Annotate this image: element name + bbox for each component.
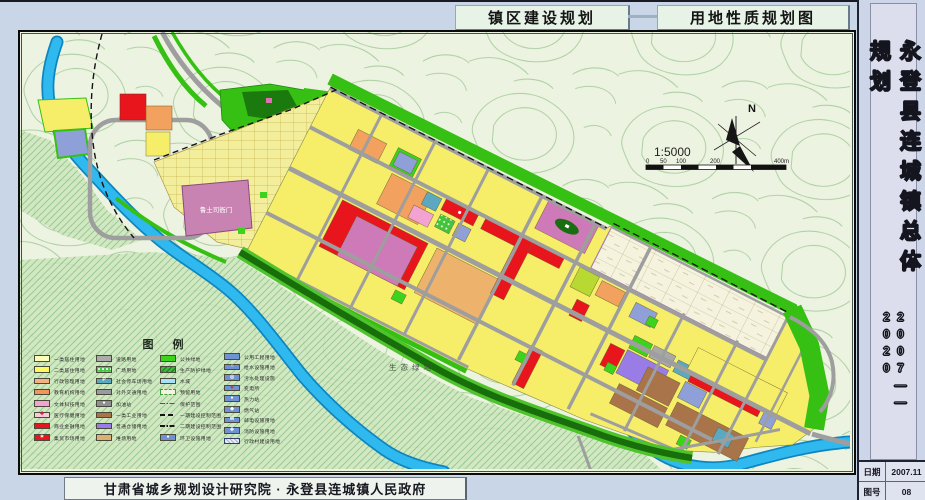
legend-symbol: ✶	[34, 434, 50, 441]
legend-label: 医疗保健用地	[54, 412, 85, 419]
sidebar-panel: 永登县连城镇总体规划 2007——2020	[870, 3, 917, 460]
legend-label: 燃气站	[244, 407, 260, 414]
date-label: 日期	[859, 462, 886, 481]
legend-swatch	[160, 366, 176, 373]
titleblock-row: 日期 2007.11	[859, 462, 925, 482]
legend-label: 保护范围	[180, 401, 201, 408]
legend-label: 对外交通用地	[116, 389, 147, 396]
legend-symbol: ◆	[224, 406, 240, 413]
titleblock-row: 图号 08	[859, 482, 925, 500]
map-frame: 鲁土司衙门	[18, 30, 856, 475]
plan-years-vertical: 2007——2020	[880, 310, 908, 459]
legend-swatch	[96, 423, 112, 430]
sheet-top-border	[0, 0, 925, 2]
legend: 图 例 一类居住用地二类居住用地行政管理用地教育机构用地文体科技用地✚医疗保健用…	[34, 336, 296, 468]
legend-label: 行政村建设用地	[244, 438, 280, 445]
plan-title-vertical: 永登县连城镇总体规划	[864, 40, 924, 302]
legend-label: 邮电设施用地	[244, 417, 275, 424]
legend-swatch	[34, 366, 50, 373]
legend-swatch	[160, 378, 176, 385]
legend-swatch	[160, 403, 176, 405]
legend-label: 二类居住用地	[54, 367, 85, 374]
legend-label: 社会停车场用地	[116, 378, 152, 385]
legend-label: 给水设施用地	[244, 364, 275, 371]
legend-label: 行政管理用地	[54, 378, 85, 385]
legend-label: 道路用地	[116, 356, 137, 363]
legend-swatch	[160, 414, 176, 416]
legend-swatch	[34, 400, 50, 407]
legend-swatch	[34, 378, 50, 385]
legend-label: 热力站	[244, 396, 260, 403]
legend-symbol: ●	[96, 400, 112, 407]
legend-swatch	[96, 434, 112, 441]
legend-symbol: ✚	[34, 412, 50, 419]
legend-label: 环卫设施用地	[180, 435, 211, 442]
legend-swatch	[160, 355, 176, 362]
legend-swatch	[34, 423, 50, 430]
legend-swatch	[96, 366, 112, 373]
legend-label: 一期建设控制范围	[180, 412, 222, 419]
legend-swatch	[224, 353, 240, 360]
legend-swatch	[34, 355, 50, 362]
legend-symbol: ✚	[224, 427, 240, 434]
legend-title: 图 例	[102, 336, 232, 352]
legend-symbol: ●	[224, 395, 240, 402]
title-connector	[628, 15, 658, 18]
legend-symbol: ●	[160, 434, 176, 441]
legend-swatch	[160, 389, 176, 396]
legend-label: 文体科技用地	[54, 401, 85, 408]
title-right: 用地性质规划图	[657, 5, 850, 31]
legend-swatch	[96, 412, 112, 419]
legend-symbol: P	[96, 378, 112, 385]
legend-label: 生产防护绿地	[180, 367, 211, 374]
legend-label: 加油站	[116, 401, 132, 408]
legend-label: 商业金融用地	[54, 423, 85, 430]
legend-label: 公用工程用地	[244, 354, 275, 361]
legend-label: 污水处理设施	[244, 375, 275, 382]
sheet-number-value: 08	[886, 482, 925, 500]
sheet-number-label: 图号	[859, 482, 886, 500]
legend-label: 消防设施用地	[244, 428, 275, 435]
legend-swatch	[224, 438, 240, 445]
titleblock: 日期 2007.11 图号 08	[859, 460, 925, 500]
legend-symbol: ✉	[224, 417, 240, 424]
legend-swatch	[96, 355, 112, 362]
planning-sheet: 镇区建设规划 用地性质规划图	[0, 0, 925, 500]
credit-bar: 甘肃省城乡规划设计研究院 · 永登县连城镇人民政府	[64, 477, 467, 500]
legend-label: 变电所	[244, 385, 260, 392]
legend-label: 预留用地	[180, 389, 201, 396]
legend-swatch	[160, 425, 176, 427]
legend-label: 二期建设控制范围	[180, 423, 222, 430]
sheet-sidebar: 永登县连城镇总体规划 2007——2020 日期 2007.11 图号 08	[857, 0, 925, 500]
legend-label: 一类工业用地	[116, 412, 147, 419]
legend-label: 普通仓储用地	[116, 423, 147, 430]
legend-symbol: ○	[224, 364, 240, 371]
legend-symbol: ✦	[224, 385, 240, 392]
legend-label: 水域	[180, 378, 190, 385]
legend-label: 公共绿地	[180, 356, 201, 363]
legend-swatch	[96, 389, 112, 396]
legend-swatch	[34, 389, 50, 396]
legend-label: 堆场用地	[116, 435, 137, 442]
legend-label: 教育机构用地	[54, 389, 85, 396]
legend-label: 集贸市场用地	[54, 435, 85, 442]
legend-label: 广场用地	[116, 367, 137, 374]
legend-symbol: ◎	[224, 374, 240, 381]
date-value: 2007.11	[886, 462, 925, 481]
title-left: 镇区建设规划	[455, 5, 630, 31]
legend-label: 一类居住用地	[54, 356, 85, 363]
